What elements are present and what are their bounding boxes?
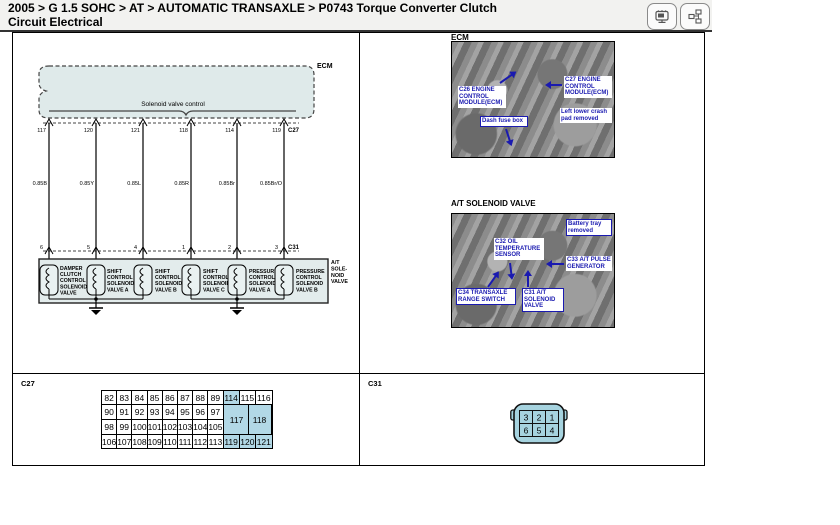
wiring-diagram: ECM Solenoid valve control C27 C31 117 0… [13, 33, 359, 373]
callout-c33-pulse-gen: C33 A/T PULSE GENERATOR [566, 256, 612, 271]
photo-panel: ECM C26 ENGINE CONTROL MODULE(ECM) C27 E… [360, 33, 704, 373]
callout-c26-ecm: C26 ENGINE CONTROL MODULE(ECM) [458, 86, 506, 108]
ecm-block [39, 66, 314, 118]
c27-pin-105: 105 [208, 420, 223, 435]
c27-pin-97: 97 [208, 405, 223, 420]
svg-text:2: 2 [537, 413, 542, 423]
c27-pin-117: 117 [224, 405, 249, 434]
c27-pin-91: 91 [117, 405, 132, 420]
c27-pin-86: 86 [162, 391, 177, 405]
c27-pin-121: 121 [256, 435, 272, 449]
arrow-icon [527, 275, 529, 287]
wire-group-1: 117 0.85B 6 [33, 119, 53, 265]
svg-text:119: 119 [272, 128, 281, 134]
callout-c34-range-switch: C34 TRANSAXLE RANGE SWITCH [456, 288, 516, 305]
ecm-photo: C26 ENGINE CONTROL MODULE(ECM) C27 ENGIN… [451, 41, 615, 158]
arrow-icon [551, 263, 564, 265]
c31-ref-label: C31 [288, 245, 300, 251]
c27-pin-103: 103 [177, 420, 192, 435]
arrow-icon [487, 275, 497, 288]
c27-pin-merged: 117118 [223, 405, 272, 435]
c27-ref-label: C27 [288, 128, 300, 134]
arrow-icon [550, 84, 562, 86]
svg-text:5: 5 [87, 245, 90, 251]
c27-pin-92: 92 [132, 405, 147, 420]
c27-pin-116: 116 [256, 391, 272, 405]
wire-group-4: 118 0.85R 1 [174, 119, 195, 265]
c27-panel-label: C27 [21, 379, 35, 388]
wiring-diagram-panel: ECM Solenoid valve control C27 C31 117 0… [13, 33, 359, 373]
c27-pin-102: 102 [162, 420, 177, 435]
ecm-label: ECM [317, 63, 333, 70]
c27-pin-113: 113 [208, 435, 223, 449]
window-view-button[interactable] [647, 3, 677, 30]
c31-connector-panel: C31 3 2 1 6 5 4 [360, 374, 704, 465]
wire-group-3: 121 0.85L 4 [127, 119, 147, 265]
c27-pin-101: 101 [147, 420, 162, 435]
c31-connector-graphic: 3 2 1 6 5 4 [510, 400, 568, 448]
svg-text:1: 1 [550, 413, 555, 423]
svg-text:0.85Br/O: 0.85Br/O [260, 181, 283, 187]
svg-text:118: 118 [179, 128, 188, 134]
svg-text:1: 1 [182, 245, 185, 251]
c27-pin-84: 84 [132, 391, 147, 405]
wire-group-5: 114 0.85Br 2 [219, 119, 241, 265]
c27-pin-88: 88 [193, 391, 208, 405]
flowchart-icon [687, 9, 703, 24]
svg-text:6: 6 [40, 245, 43, 251]
svg-text:3: 3 [275, 245, 278, 251]
arrow-icon [499, 74, 512, 84]
c31-panel-label: C31 [368, 379, 382, 388]
c27-pin-115: 115 [239, 391, 255, 405]
c27-pin-87: 87 [177, 391, 192, 405]
c27-pin-107: 107 [117, 435, 132, 449]
c27-pin-82: 82 [102, 391, 117, 405]
svg-text:0.85L: 0.85L [127, 181, 141, 187]
c27-pin-95: 95 [177, 405, 192, 420]
svg-text:114: 114 [225, 128, 234, 134]
c27-pin-106: 106 [102, 435, 117, 449]
c27-pin-96: 96 [193, 405, 208, 420]
arrow-icon [505, 129, 511, 142]
svg-text:0.85R: 0.85R [174, 181, 189, 187]
breadcrumb-line2: Circuit Electrical [8, 15, 497, 29]
c27-pin-grid: 8283848586878889114115116909192939495969… [101, 390, 273, 449]
window-icon [654, 9, 670, 24]
app-window: 2005 > G 1.5 SOHC > AT > AUTOMATIC TRANS… [0, 0, 840, 525]
svg-text:5: 5 [537, 426, 542, 436]
c27-pin-114: 114 [223, 391, 239, 405]
c27-pin-118: 118 [249, 405, 272, 434]
c27-pinout-panel: C27 828384858687888911411511690919293949… [13, 374, 359, 465]
c27-pin-94: 94 [162, 405, 177, 420]
bracket-label: Solenoid valve control [141, 101, 205, 108]
c27-pin-119: 119 [223, 435, 239, 449]
svg-text:4: 4 [550, 426, 555, 436]
c27-pin-112: 112 [193, 435, 208, 449]
c27-pin-98: 98 [102, 420, 117, 435]
header-bar: 2005 > G 1.5 SOHC > AT > AUTOMATIC TRANS… [0, 0, 712, 32]
svg-text:3: 3 [524, 413, 529, 423]
svg-text:2: 2 [228, 245, 231, 251]
breadcrumb-title: 2005 > G 1.5 SOHC > AT > AUTOMATIC TRANS… [8, 1, 497, 29]
c27-pin-83: 83 [117, 391, 132, 405]
callout-c32-oil-temp: C32 OIL TEMPERATURE SENSOR [494, 238, 544, 260]
c27-pin-100: 100 [132, 420, 147, 435]
content-frame: ECM Solenoid valve control C27 C31 117 0… [12, 32, 705, 466]
c27-pin-89: 89 [208, 391, 223, 405]
c27-pin-111: 111 [177, 435, 192, 449]
callout-crash-pad: Left lower crash pad removed [560, 108, 612, 123]
svg-text:4: 4 [134, 245, 137, 251]
svg-text:6: 6 [524, 426, 529, 436]
wire-group-6: 119 0.85Br/O 3 [260, 119, 288, 265]
callout-battery-tray: Battery tray removed [566, 219, 612, 236]
c27-pin-109: 109 [147, 435, 162, 449]
c27-pin-90: 90 [102, 405, 117, 420]
svg-text:120: 120 [84, 128, 93, 134]
svg-text:117: 117 [37, 128, 46, 134]
svg-text:0.85Br: 0.85Br [219, 181, 235, 187]
svg-text:0.85Y: 0.85Y [80, 181, 95, 187]
breadcrumb-line1: 2005 > G 1.5 SOHC > AT > AUTOMATIC TRANS… [8, 1, 497, 15]
svg-text:121: 121 [131, 128, 140, 134]
diagram-tree-button[interactable] [680, 3, 710, 30]
solenoid-valve-photo: Battery tray removed C32 OIL TEMPERATURE… [451, 213, 615, 328]
c27-pin-85: 85 [147, 391, 162, 405]
c27-pin-108: 108 [132, 435, 147, 449]
arrow-icon [509, 263, 512, 275]
c27-pin-104: 104 [193, 420, 208, 435]
c27-pin-99: 99 [117, 420, 132, 435]
callout-c27-ecm: C27 ENGINE CONTROL MODULE(ECM) [564, 76, 612, 98]
photo2-heading: A/T SOLENOID VALVE [451, 199, 536, 208]
callout-dash-fuse-box: Dash fuse box [480, 116, 528, 127]
solenoid-box-label: A/TSOLE-NOIDVALVE [331, 260, 348, 285]
svg-text:0.85B: 0.85B [33, 181, 48, 187]
c27-pin-93: 93 [147, 405, 162, 420]
c27-pin-110: 110 [162, 435, 177, 449]
callout-c31-solenoid: C31 A/T SOLENOID VALVE [522, 288, 564, 312]
c27-pin-120: 120 [239, 435, 255, 449]
wire-group-2: 120 0.85Y 5 [80, 119, 100, 265]
